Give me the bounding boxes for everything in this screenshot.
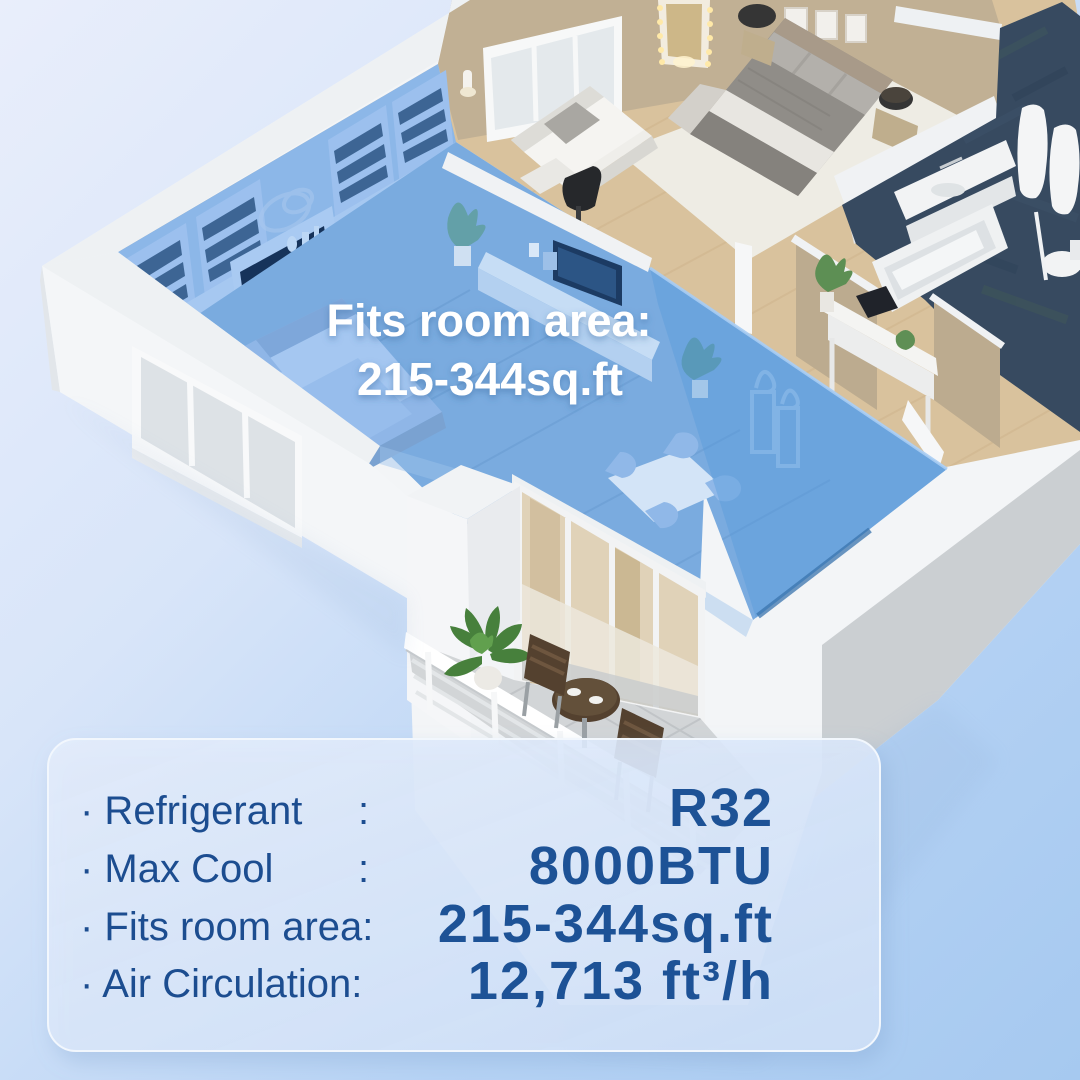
svg-text:215-344sq.ft: 215-344sq.ft bbox=[438, 894, 774, 954]
svg-text:8000BTU: 8000BTU bbox=[529, 836, 774, 896]
svg-text::: : bbox=[358, 847, 369, 891]
svg-text:Fits room area:: Fits room area: bbox=[326, 295, 651, 346]
svg-text::: : bbox=[358, 789, 369, 833]
svg-text:· Fits room area:: · Fits room area: bbox=[80, 905, 373, 949]
svg-text:· Refrigerant: · Refrigerant bbox=[80, 789, 302, 833]
svg-text:12,713 ft³/h: 12,713 ft³/h bbox=[468, 951, 774, 1011]
svg-text:215-344sq.ft: 215-344sq.ft bbox=[357, 353, 623, 405]
svg-text:· Air Circulation:: · Air Circulation: bbox=[80, 962, 362, 1006]
svg-text:R32: R32 bbox=[669, 778, 774, 838]
svg-text:· Max Cool: · Max Cool bbox=[80, 847, 273, 891]
